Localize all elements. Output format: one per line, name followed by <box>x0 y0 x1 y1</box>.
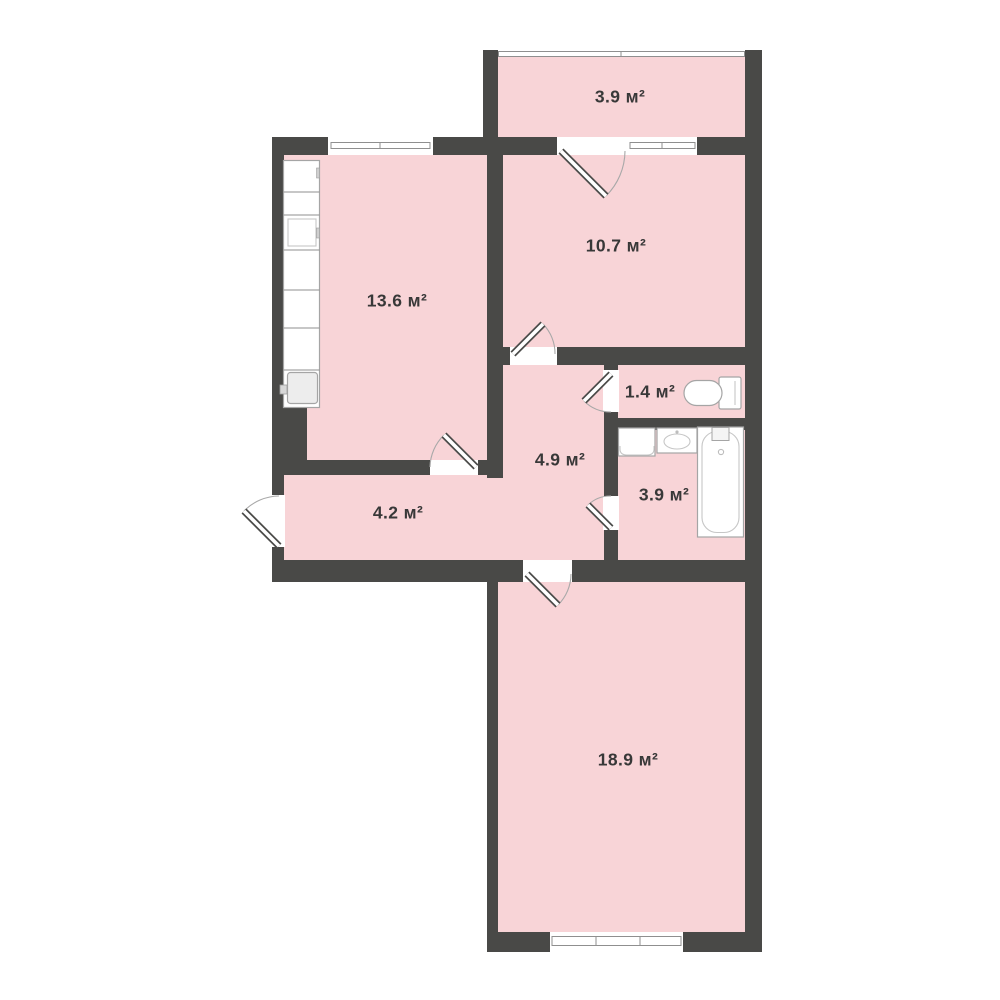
wall-living-left <box>487 582 498 952</box>
room-label-living: 18.9 м² <box>598 750 659 771</box>
wall-kitchen-bottom-b <box>478 460 487 475</box>
wall-bottom-band-b <box>572 560 762 582</box>
opening-entrance-door <box>271 495 285 547</box>
wall-outer-right <box>745 50 762 952</box>
opening-kitchen-door <box>430 460 478 475</box>
wall-kitchen-bottom-a <box>272 460 430 475</box>
wall-hall-toilet-c <box>604 530 618 560</box>
wall-bedroom-bottom-b <box>557 347 745 365</box>
room-label-bedroom: 10.7 м² <box>586 236 647 257</box>
room-label-toilet: 1.4 м² <box>625 382 675 403</box>
opening-bedroom-door <box>510 347 557 365</box>
wall-vertical-main <box>487 137 503 478</box>
opening-toilet-door <box>603 370 619 412</box>
balcony-glazing <box>499 52 745 57</box>
floor-plan: 3.9 м² 10.7 м² 13.6 м² 1.4 м² 4.9 м² 3.9… <box>0 0 1000 1000</box>
wall-balcony-band-right <box>697 137 745 155</box>
wall-kitchen-pier <box>284 407 307 460</box>
room-label-corridor: 4.2 м² <box>373 503 423 524</box>
room-label-bathroom: 3.9 м² <box>639 485 689 506</box>
wall-hall-toilet-b <box>604 412 618 496</box>
opening-living-window <box>550 932 683 952</box>
wall-bottom-band-a <box>272 560 523 582</box>
opening-living-door <box>523 560 572 582</box>
wall-toilet-bath-divider <box>618 418 745 430</box>
room-label-hallway: 4.9 м² <box>535 450 585 471</box>
wall-outer-left-upper <box>272 137 284 495</box>
wall-balcony-left <box>483 50 498 137</box>
opening-bedroom-window <box>628 137 697 155</box>
room-label-kitchen: 13.6 м² <box>367 291 428 312</box>
opening-kitchen-window <box>328 137 433 155</box>
room-label-balcony: 3.9 м² <box>595 87 645 108</box>
opening-balcony-door <box>557 137 628 155</box>
hall-corridor-passage <box>487 478 503 560</box>
opening-bathroom-door <box>603 496 619 530</box>
wall-bedroom-bottom-a <box>487 347 510 365</box>
